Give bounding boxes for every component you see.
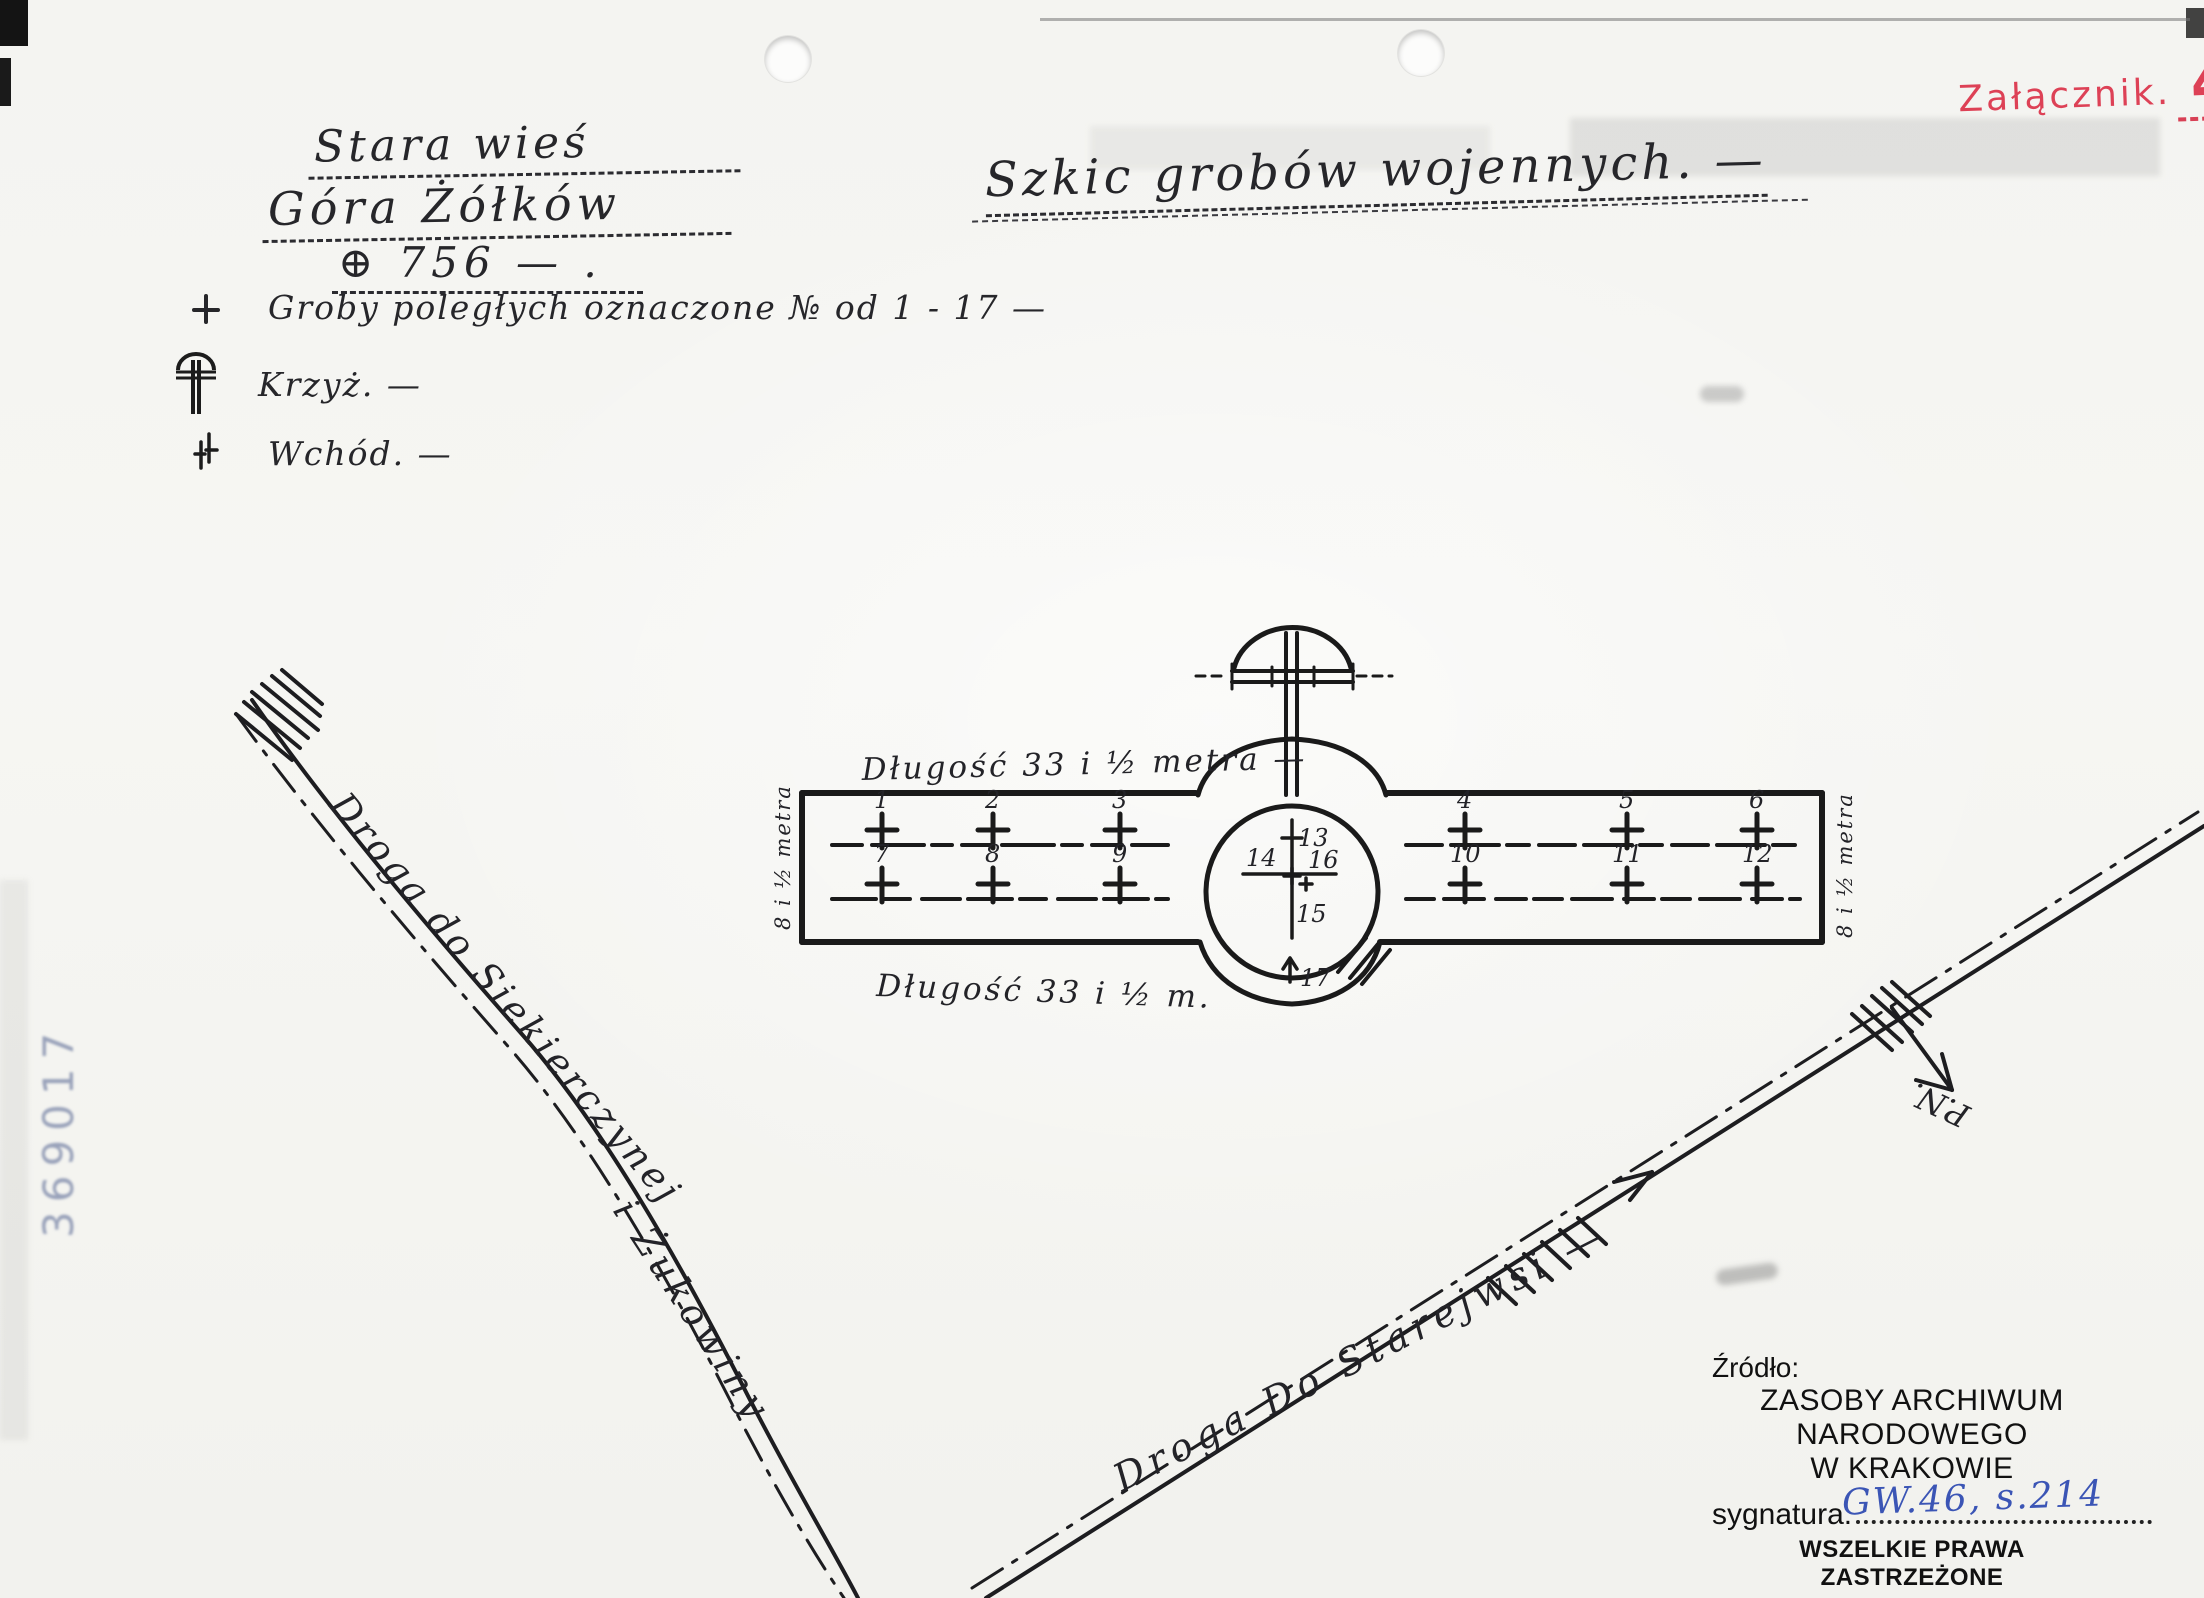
svg-text:14: 14 xyxy=(1246,844,1277,872)
north-arrow xyxy=(1852,982,1952,1090)
svg-text:10: 10 xyxy=(1450,840,1481,868)
road-left-label-1: Droga do Siekierczynej xyxy=(320,783,690,1213)
source-block: Źródło: ZASOBY ARCHIWUM NARODOWEGO W KRA… xyxy=(1712,1352,2112,1598)
svg-text:6: 6 xyxy=(1749,786,1764,814)
grave-crosses-left xyxy=(867,814,1135,902)
road-left-fletching xyxy=(236,670,322,760)
signature-label: sygnatura. xyxy=(1712,1498,1852,1531)
grave-crosses-right xyxy=(1450,814,1772,902)
svg-text:2: 2 xyxy=(984,786,1000,814)
width-label-right: 8 i ½ metra xyxy=(1833,792,1857,938)
svg-text:15: 15 xyxy=(1296,900,1327,928)
svg-text:7: 7 xyxy=(874,840,890,868)
rights-notice: WSZELKIE PRAWA ZASTRZEŻONE xyxy=(1712,1536,2112,1592)
svg-text:11: 11 xyxy=(1612,840,1643,868)
svg-text:3: 3 xyxy=(1112,786,1127,814)
svg-text:17: 17 xyxy=(1300,964,1331,992)
length-label-bottom: Długość 33 i ½ m. xyxy=(875,968,1213,1016)
svg-text:16: 16 xyxy=(1308,846,1339,874)
road-left xyxy=(236,700,858,1598)
source-archive-name: ZASOBY ARCHIWUM NARODOWEGO xyxy=(1712,1384,2112,1452)
svg-text:8: 8 xyxy=(985,840,1000,868)
source-heading: Źródło: xyxy=(1712,1352,2112,1384)
scanned-document-page: Załącznik.4 369017 Stara wieś Góra Żółkó… xyxy=(0,0,2204,1598)
svg-text:12: 12 xyxy=(1742,840,1773,868)
width-label-left: 8 i ½ metra xyxy=(771,784,795,930)
svg-text:5: 5 xyxy=(1619,786,1634,814)
signature-line: sygnatura. GW.46, s.214 xyxy=(1712,1494,2112,1532)
length-label-top: Długość 33 i ½ metra — xyxy=(860,740,1308,788)
road-left-label-2: i Żukowiny xyxy=(604,1191,780,1430)
svg-text:9: 9 xyxy=(1112,840,1127,868)
road-right-label: Droga Do Starejwsi — xyxy=(1105,1213,1613,1501)
north-label: P.N. xyxy=(1904,1075,1977,1136)
svg-text:1: 1 xyxy=(874,786,889,814)
svg-text:4: 4 xyxy=(1456,786,1472,814)
